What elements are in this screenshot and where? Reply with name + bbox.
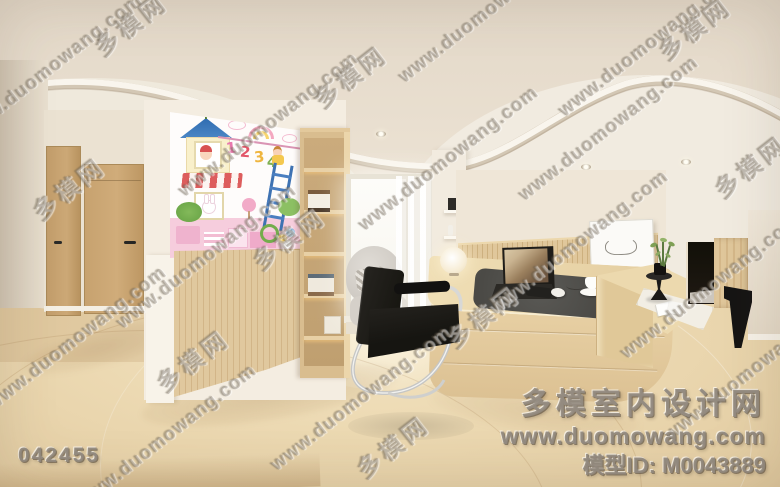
model-id: 模型ID: M0043889	[501, 454, 766, 479]
site-name: 多模室内设计网	[501, 388, 766, 422]
site-url: www.duomowang.com	[501, 424, 766, 450]
site-watermark-block: 多模室内设计网 www.duomowang.com 模型ID: M0043889	[501, 388, 766, 479]
photo-id: 042455	[18, 444, 100, 468]
panorama-photo: 1 2 3 4	[0, 0, 780, 487]
